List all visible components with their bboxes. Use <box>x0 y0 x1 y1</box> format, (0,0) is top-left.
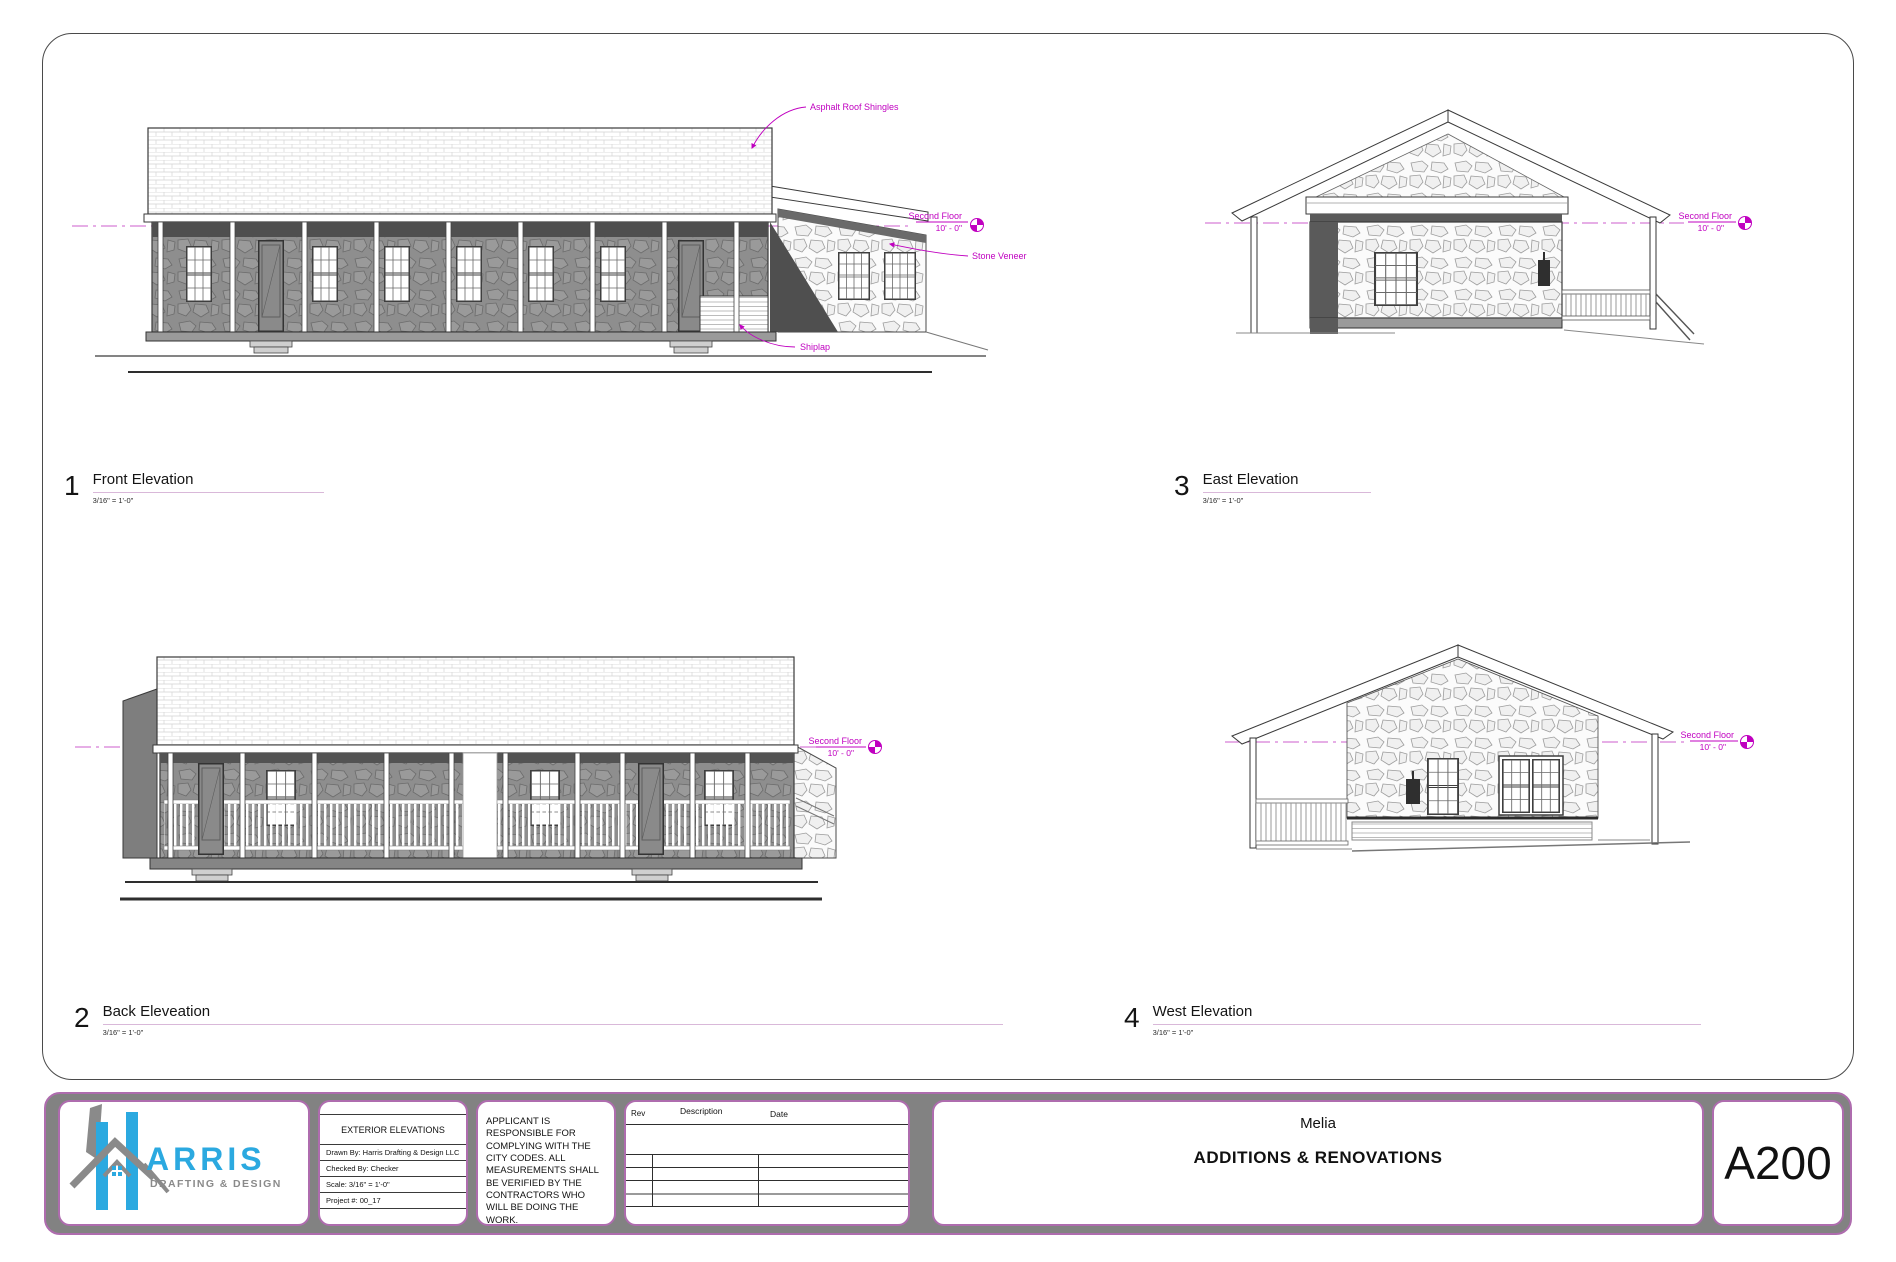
west-level-symbol-icon <box>1741 736 1754 749</box>
west-elevation-drawing <box>1225 645 1690 851</box>
back-steps <box>192 869 672 881</box>
rev-table-line <box>626 1154 908 1155</box>
rev-table-line <box>626 1167 908 1168</box>
disclaimer-cell: APPLICANT IS RESPONSIBLE FOR COMPLYING W… <box>476 1100 616 1226</box>
view-number: 2 <box>74 1004 90 1032</box>
west-porch-post-left <box>1250 738 1256 848</box>
east-header-trim <box>1306 197 1568 214</box>
shiplap-label: Shiplap <box>800 342 830 352</box>
back-annotations: Second Floor 10' - 0" <box>808 736 881 758</box>
view-title-rule <box>103 1024 1003 1025</box>
back-center-opening <box>463 753 497 858</box>
east-porch-post-right <box>1650 217 1656 329</box>
west-base-siding <box>1352 822 1592 840</box>
description-header: Description <box>680 1106 723 1116</box>
front-steps <box>250 341 712 353</box>
view-title-back: 2 Back Eleveation 3/16" = 1'-0" <box>74 1004 1003 1037</box>
project-subtitle: ADDITIONS & RENOVATIONS <box>1194 1148 1443 1168</box>
project-number: Project #: 00_17 <box>320 1193 466 1209</box>
logo-tagline: DRAFTING & DESIGN <box>150 1178 282 1190</box>
back-elevation-drawing <box>75 657 836 899</box>
back-level-value: 10' - 0" <box>828 748 854 758</box>
rev-header: Rev <box>631 1109 645 1118</box>
view-title-rule <box>1153 1024 1701 1025</box>
east-porch-post-left <box>1251 217 1257 333</box>
back-porch-floor <box>150 858 802 869</box>
drawing-sheet: Asphalt Roof Shingles Second Floor 10' -… <box>0 0 1896 1262</box>
east-shadow-band <box>1310 222 1338 318</box>
west-porch-post-right <box>1652 734 1658 844</box>
back-ground-lines <box>120 882 822 899</box>
east-ground-lines <box>1236 330 1704 344</box>
logo-blue-bar-left <box>96 1122 108 1210</box>
drawn-by: Drawn By: Harris Drafting & Design LLC <box>320 1145 466 1161</box>
view-title-west: 4 West Elevation 3/16" = 1'-0" <box>1124 1004 1701 1037</box>
logo-window-icon <box>112 1166 122 1176</box>
company-logo: ARRIS DRAFTING & DESIGN <box>60 1102 308 1224</box>
view-number: 4 <box>1124 1004 1140 1032</box>
east-elevation-drawing <box>1205 110 1704 344</box>
rev-table-vline <box>652 1154 653 1206</box>
project-name: Melia <box>1300 1115 1336 1132</box>
back-left-wing <box>123 689 157 858</box>
back-level-label: Second Floor <box>808 736 862 746</box>
view-title-front: 1 Front Elevation 3/16" = 1'-0" <box>64 472 324 505</box>
east-annotations: Second Floor 10' - 0" <box>1678 211 1751 233</box>
view-name: East Elevation <box>1203 472 1371 489</box>
date-header: Date <box>770 1109 788 1119</box>
sheet-title: EXTERIOR ELEVATIONS <box>320 1115 466 1145</box>
front-elevation-drawing <box>72 128 988 372</box>
east-level-symbol-icon <box>1739 217 1752 230</box>
checked-by: Checked By: Checker <box>320 1161 466 1177</box>
logo-wordmark: ARRIS <box>146 1141 266 1177</box>
info-divider <box>320 1102 466 1115</box>
east-base-band <box>1310 318 1562 328</box>
view-title-rule <box>93 492 324 493</box>
view-name: Back Eleveation <box>103 1004 1003 1021</box>
logo-cell: ARRIS DRAFTING & DESIGN <box>58 1100 310 1226</box>
view-name: Front Elevation <box>93 472 324 489</box>
front-main-roof <box>148 128 772 214</box>
view-scale: 3/16" = 1'-0" <box>1203 496 1371 505</box>
view-scale: 3/16" = 1'-0" <box>1153 1028 1701 1037</box>
west-annotations: Second Floor 10' - 0" <box>1680 730 1753 752</box>
revision-table-cell: Rev Description Date <box>624 1100 910 1226</box>
rev-table-vline <box>758 1154 759 1206</box>
drawing-scale: Scale: 3/16" = 1'-0" <box>320 1177 466 1193</box>
front-porch-floor <box>146 332 776 341</box>
rev-table-line <box>626 1124 908 1125</box>
rev-table-line <box>626 1193 908 1195</box>
west-level-value: 10' - 0" <box>1700 742 1726 752</box>
view-number: 3 <box>1174 472 1190 500</box>
east-level-value: 10' - 0" <box>1698 223 1724 233</box>
disclaimer-text: APPLICANT IS RESPONSIBLE FOR COMPLYING W… <box>486 1116 606 1226</box>
back-level-symbol-icon <box>869 741 882 754</box>
west-window-single <box>1428 759 1458 814</box>
east-porch-railing <box>1562 290 1694 340</box>
view-title-rule <box>1203 492 1371 493</box>
sheet-info-cell: EXTERIOR ELEVATIONS Drawn By: Harris Dra… <box>318 1100 468 1226</box>
west-level-label: Second Floor <box>1680 730 1734 740</box>
asphalt-roof-shingles-label: Asphalt Roof Shingles <box>810 102 899 112</box>
east-window <box>1375 253 1417 305</box>
view-name: West Elevation <box>1153 1004 1701 1021</box>
west-window-double <box>1499 756 1563 815</box>
view-scale: 3/16" = 1'-0" <box>103 1028 1003 1037</box>
project-cell: Melia ADDITIONS & RENOVATIONS <box>932 1100 1704 1226</box>
front-level-label: Second Floor <box>908 211 962 221</box>
stone-veneer-label: Stone Veneer <box>972 251 1027 261</box>
front-porch-fascia <box>144 214 776 222</box>
front-level-symbol-icon <box>971 219 984 232</box>
sheet-number: A200 <box>1724 1136 1831 1190</box>
sheet-number-cell: A200 <box>1712 1100 1844 1226</box>
front-level-value: 10' - 0" <box>936 223 962 233</box>
view-scale: 3/16" = 1'-0" <box>93 496 324 505</box>
back-porch-fascia <box>153 745 798 753</box>
east-level-label: Second Floor <box>1678 211 1732 221</box>
back-roof <box>157 657 794 745</box>
view-number: 1 <box>64 472 80 500</box>
elevations-canvas: Asphalt Roof Shingles Second Floor 10' -… <box>0 0 1896 1085</box>
view-title-east: 3 East Elevation 3/16" = 1'-0" <box>1174 472 1371 505</box>
west-porch-railing <box>1256 799 1348 845</box>
rev-table-line <box>626 1180 908 1181</box>
east-wall <box>1310 222 1562 318</box>
rev-table-line <box>626 1206 908 1207</box>
back-right-end <box>794 745 836 858</box>
